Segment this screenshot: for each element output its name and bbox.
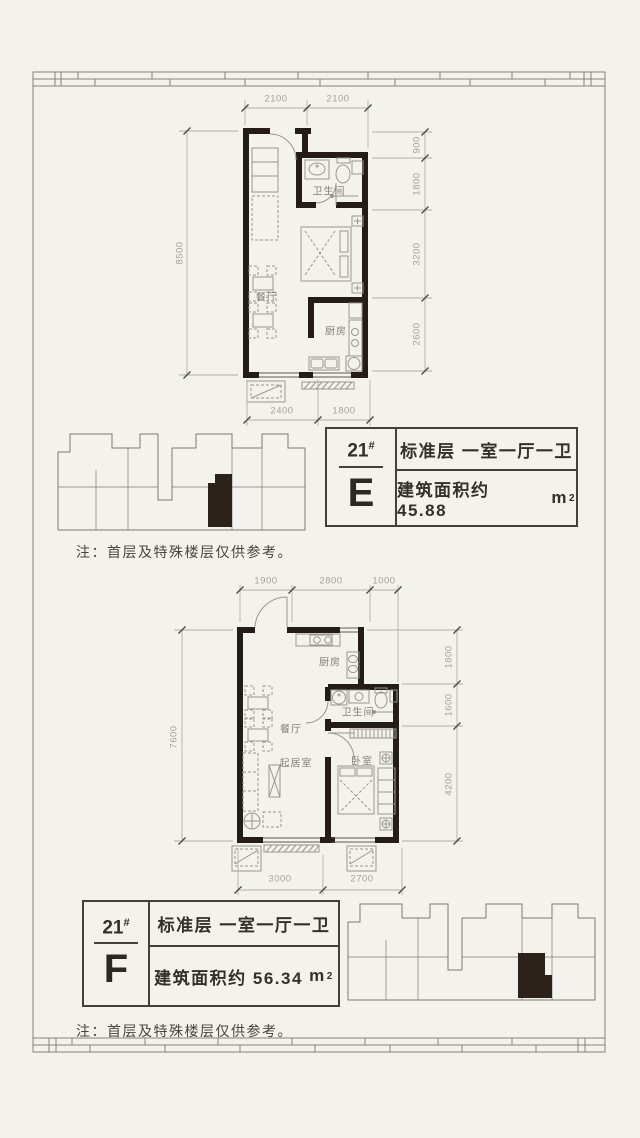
highlighted-unit-e bbox=[208, 474, 232, 527]
room-label-living-f: 起居室 bbox=[280, 755, 313, 770]
unit-info-box-e: 21# E 标准层 一室一厅一卫 建筑面积约 45.88 m2 bbox=[325, 427, 578, 527]
key-plan-bottom bbox=[348, 904, 595, 1000]
dim-e-bottom-1: 2400 bbox=[270, 406, 293, 417]
dim-e-right-4: 2600 bbox=[412, 322, 423, 345]
unit-letter-f: F bbox=[104, 949, 128, 989]
room-label-bedroom-f: 卧室 bbox=[351, 753, 373, 768]
dim-f-bottom-1: 3000 bbox=[268, 874, 291, 885]
room-label-bath-e: 卫生间 bbox=[313, 183, 346, 198]
dim-e-right-3: 3200 bbox=[412, 242, 423, 265]
dim-f-right-1: 1800 bbox=[444, 645, 455, 668]
unit-spec-f: 标准层 一室一厅一卫 bbox=[150, 902, 338, 945]
unit-letter-e: E bbox=[348, 473, 375, 513]
divider bbox=[339, 466, 383, 468]
note-bottom: 注：首层及特殊楼层仅供参考。 bbox=[76, 1021, 293, 1041]
unit-spec-e: 标准层 一室一厅一卫 bbox=[397, 429, 576, 469]
dim-f-top-2: 2800 bbox=[319, 576, 342, 587]
dim-e-left-1: 8500 bbox=[175, 241, 186, 264]
room-label-kitchen-e: 厨房 bbox=[325, 323, 347, 338]
key-plan-top bbox=[58, 434, 305, 530]
dim-e-right-1: 900 bbox=[412, 136, 423, 153]
room-label-dining-e: 餐厅 bbox=[256, 289, 278, 304]
unit-info-box-f: 21# F 标准层 一室一厅一卫 建筑面积约 56.34 m2 bbox=[82, 900, 340, 1007]
unit-id-cell-f: 21# F bbox=[84, 902, 150, 1005]
dim-f-right-3: 4200 bbox=[444, 772, 455, 795]
room-label-dining-f: 餐厅 bbox=[280, 721, 302, 736]
room-label-kitchen-f: 厨房 bbox=[319, 654, 341, 669]
room-label-bath-f: 卫生间 bbox=[342, 704, 375, 719]
dim-f-bottom-2: 2700 bbox=[350, 874, 373, 885]
dim-e-right-2: 1800 bbox=[412, 172, 423, 195]
unit-area-e: 建筑面积约 45.88 m2 bbox=[397, 469, 576, 525]
unit-id-cell-e: 21# E bbox=[327, 429, 397, 525]
drawing-sheet: 2100 2100 8500 900 1800 3200 2600 2400 1… bbox=[0, 0, 640, 1138]
dim-e-bottom-2: 1800 bbox=[332, 406, 355, 417]
dim-f-top-3: 1000 bbox=[372, 576, 395, 587]
dim-e-top-1: 2100 bbox=[264, 94, 287, 105]
note-top: 注：首层及特殊楼层仅供参考。 bbox=[76, 542, 293, 562]
floor-plan-e bbox=[179, 100, 432, 426]
building-number-f: 21# bbox=[102, 918, 129, 937]
unit-area-f: 建筑面积约 56.34 m2 bbox=[150, 945, 338, 1005]
dim-e-top-2: 2100 bbox=[326, 94, 349, 105]
building-number-e: 21# bbox=[347, 441, 374, 460]
dim-f-right-2: 1600 bbox=[444, 693, 455, 716]
dim-f-left-1: 7600 bbox=[169, 725, 180, 748]
highlighted-unit-f bbox=[518, 953, 552, 998]
divider bbox=[94, 942, 138, 944]
dim-f-top-1: 1900 bbox=[254, 576, 277, 587]
floor-plan-f bbox=[174, 585, 463, 895]
